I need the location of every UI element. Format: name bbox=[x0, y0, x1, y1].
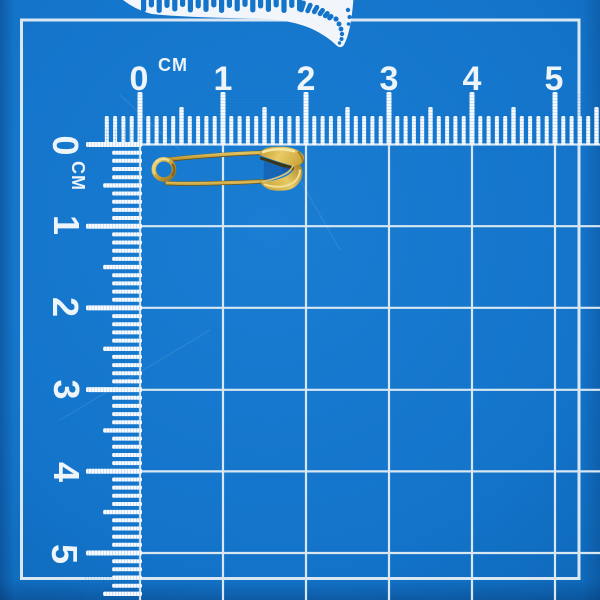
svg-text:CM: CM bbox=[68, 161, 88, 191]
svg-text:2: 2 bbox=[297, 60, 316, 98]
svg-text:4: 4 bbox=[463, 60, 482, 98]
svg-text:3: 3 bbox=[46, 379, 87, 399]
svg-text:1: 1 bbox=[46, 215, 87, 235]
svg-text:4: 4 bbox=[46, 462, 87, 482]
svg-text:5: 5 bbox=[545, 60, 564, 98]
svg-text:CM: CM bbox=[158, 55, 188, 75]
svg-text:3: 3 bbox=[380, 60, 399, 98]
svg-text:5: 5 bbox=[44, 544, 85, 564]
svg-text:0: 0 bbox=[130, 60, 149, 98]
svg-text:2: 2 bbox=[45, 297, 86, 317]
svg-text:0: 0 bbox=[45, 135, 86, 155]
svg-text:1: 1 bbox=[214, 60, 233, 98]
